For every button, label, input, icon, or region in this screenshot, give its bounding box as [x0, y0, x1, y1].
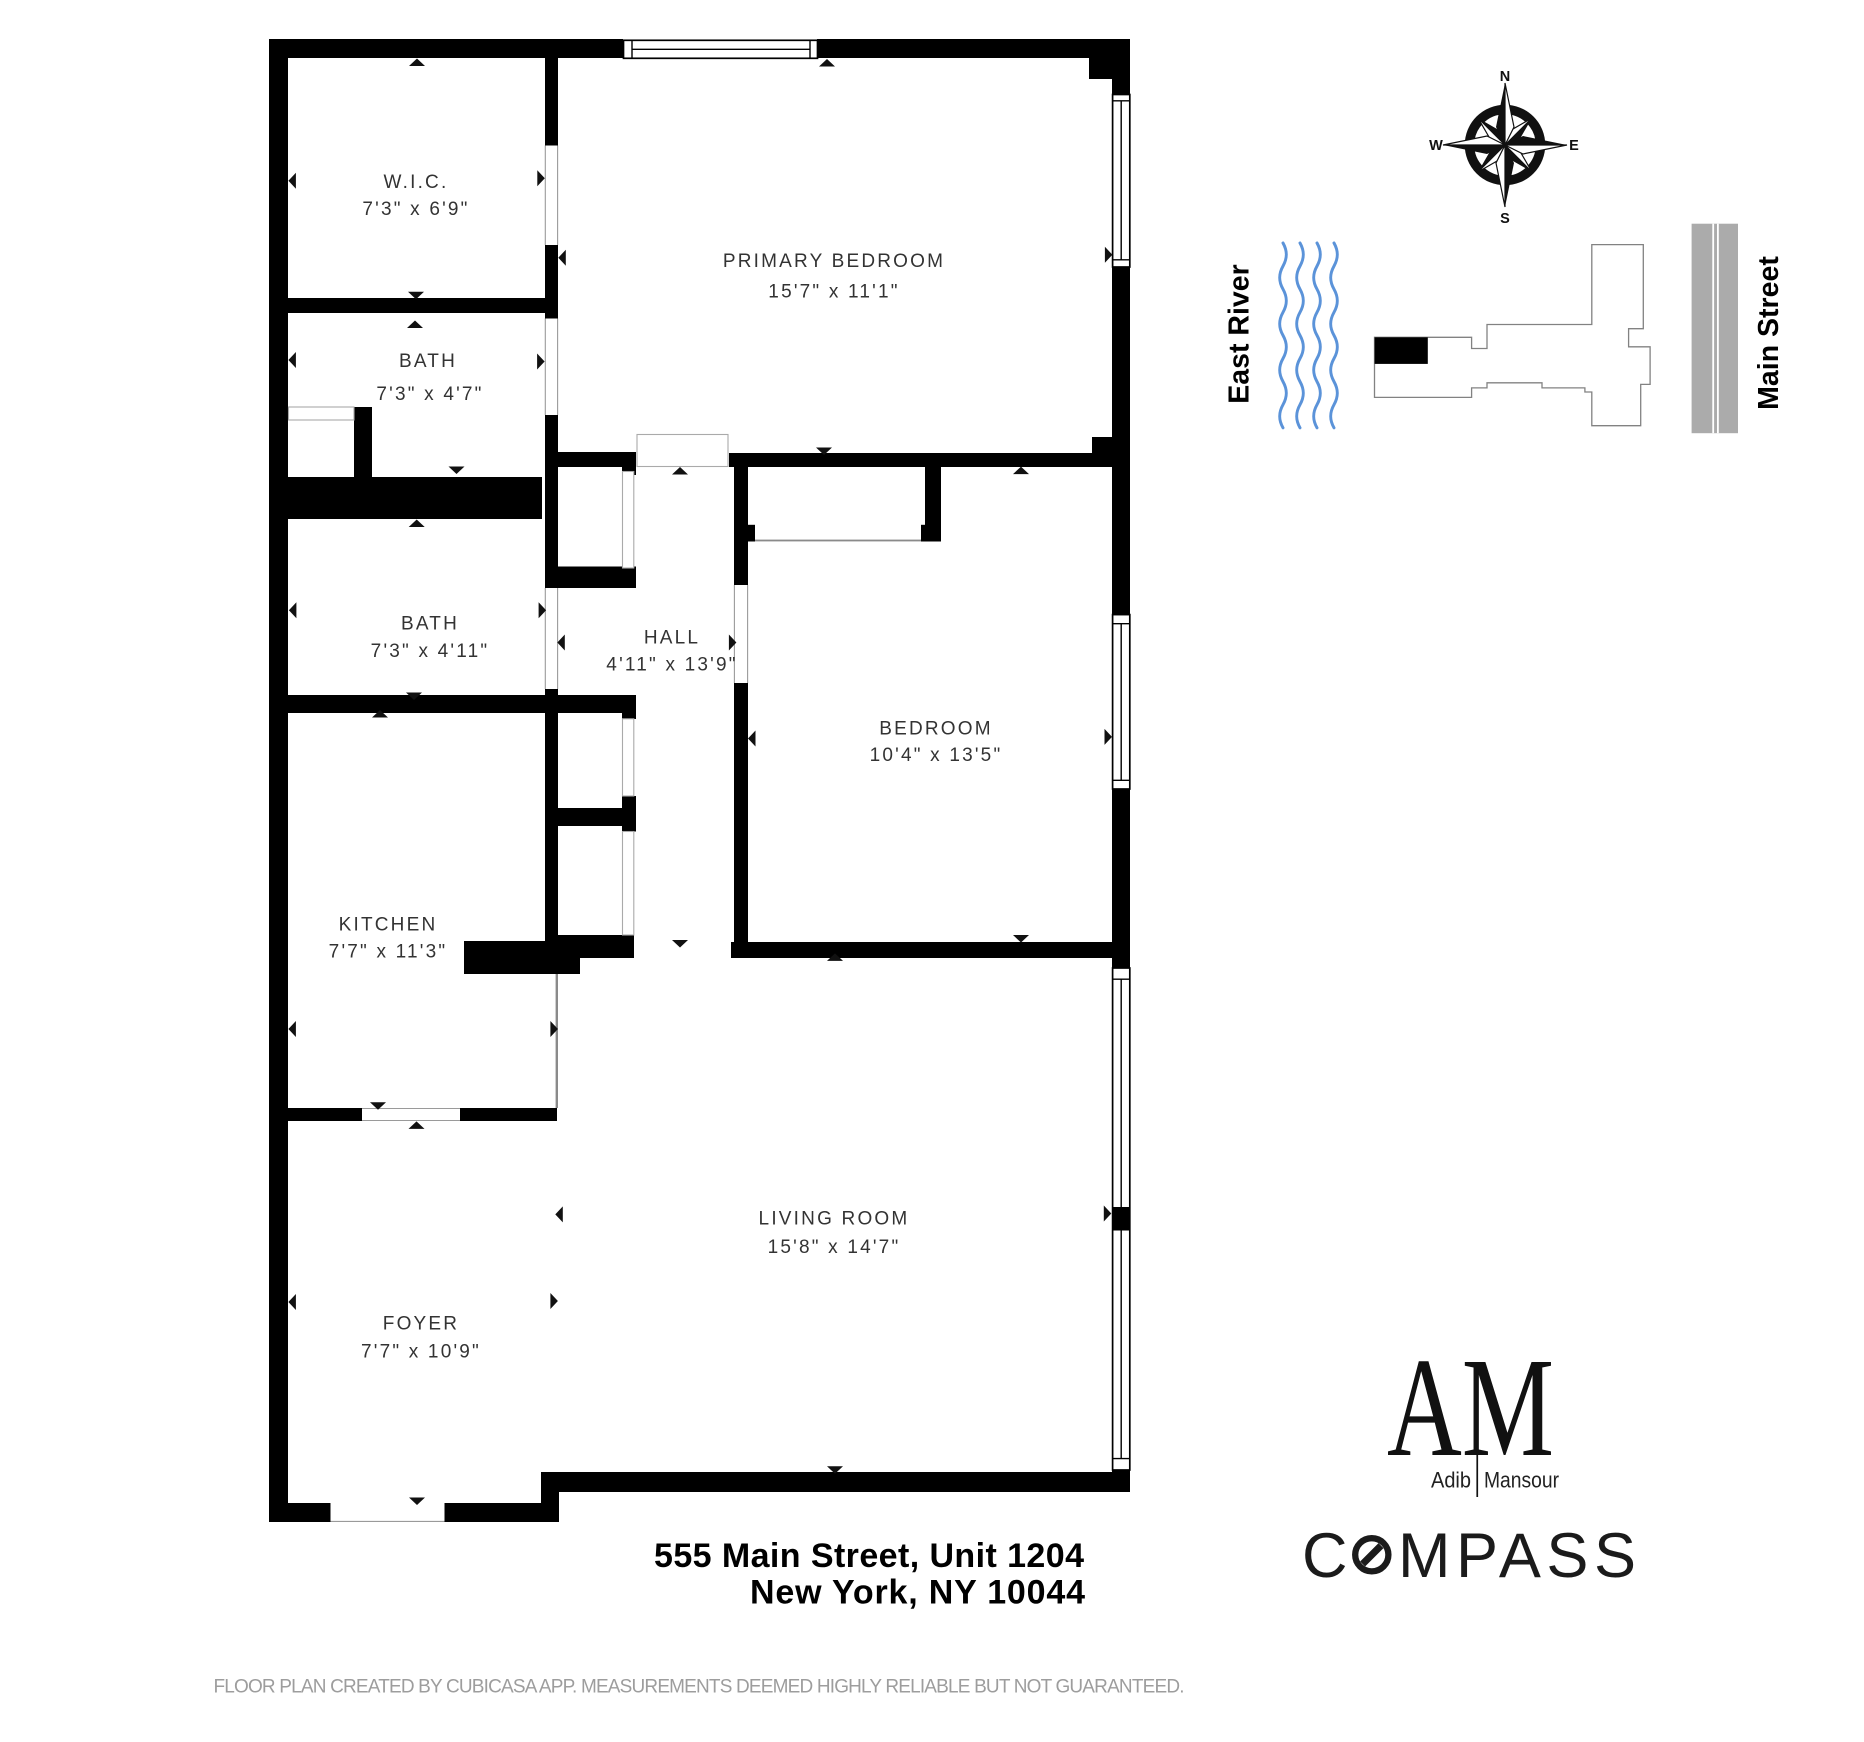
- svg-text:KITCHEN: KITCHEN: [339, 915, 438, 936]
- svg-text:15'7" x 11'1": 15'7" x 11'1": [768, 282, 899, 303]
- svg-text:Main Street: Main Street: [1753, 256, 1785, 410]
- svg-text:555 Main Street, Unit 1204: 555 Main Street, Unit 1204: [654, 1537, 1084, 1575]
- svg-text:7'7" x 10'9": 7'7" x 10'9": [361, 1342, 481, 1363]
- svg-text:BATH: BATH: [401, 614, 459, 635]
- svg-text:15'8" x 14'7": 15'8" x 14'7": [768, 1237, 901, 1258]
- svg-text:PRIMARY BEDROOM: PRIMARY BEDROOM: [723, 251, 945, 272]
- svg-text:7'3" x 4'7": 7'3" x 4'7": [376, 384, 483, 405]
- svg-text:BATH: BATH: [399, 351, 457, 372]
- svg-text:FOYER: FOYER: [383, 1314, 459, 1335]
- svg-text:East River: East River: [1224, 264, 1256, 403]
- svg-text:HALL: HALL: [644, 628, 700, 649]
- svg-text:C: C: [1302, 1521, 1348, 1591]
- svg-text:10'4" x 13'5": 10'4" x 13'5": [870, 745, 1003, 766]
- svg-text:MPASS: MPASS: [1398, 1521, 1636, 1591]
- svg-text:Mansour: Mansour: [1484, 1468, 1559, 1493]
- svg-text:LIVING ROOM: LIVING ROOM: [759, 1209, 910, 1230]
- svg-text:E: E: [1569, 138, 1579, 154]
- svg-text:W: W: [1429, 138, 1443, 154]
- svg-text:7'7" x 11'3": 7'7" x 11'3": [329, 942, 448, 963]
- svg-text:BEDROOM: BEDROOM: [879, 719, 993, 740]
- svg-text:7'3" x 4'11": 7'3" x 4'11": [371, 641, 490, 662]
- svg-text:New York, NY 10044: New York, NY 10044: [750, 1574, 1085, 1612]
- svg-text:S: S: [1500, 211, 1510, 227]
- svg-text:W.I.C.: W.I.C.: [384, 172, 449, 193]
- svg-text:FLOOR PLAN CREATED BY CUBICASA: FLOOR PLAN CREATED BY CUBICASA APP. MEAS…: [214, 1677, 1185, 1698]
- svg-text:Adib: Adib: [1431, 1468, 1471, 1493]
- svg-text:AM: AM: [1387, 1328, 1554, 1486]
- svg-text:7'3" x 6'9": 7'3" x 6'9": [362, 199, 469, 220]
- svg-text:4'11" x 13'9": 4'11" x 13'9": [606, 655, 737, 676]
- svg-text:N: N: [1500, 69, 1510, 85]
